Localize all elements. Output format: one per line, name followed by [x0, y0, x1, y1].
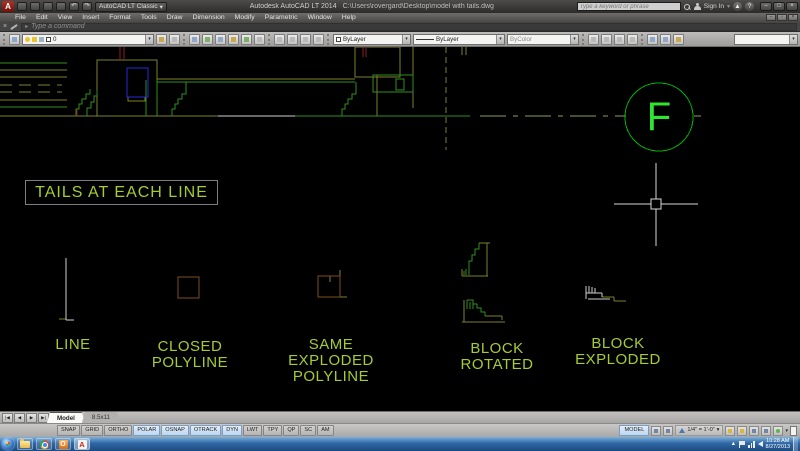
command-chevron-icon: ▸ — [25, 23, 28, 30]
command-input[interactable]: ▸ Type a command — [21, 23, 797, 31]
menu-parametric[interactable]: Parametric — [260, 13, 303, 22]
chevron-down-icon: ▾ — [496, 35, 504, 44]
plotstyle-value: ByColor — [510, 36, 532, 43]
measure-icon[interactable] — [647, 34, 658, 45]
tab-model[interactable]: Model — [47, 412, 85, 423]
titlebar: A ↶ ↷ AutoCAD LT Classic ▾ Autodesk Auto… — [0, 0, 800, 13]
menu-file[interactable]: File — [10, 13, 31, 22]
toggle-ortho[interactable]: ORTHO — [104, 425, 132, 436]
menu-modify[interactable]: Modify — [230, 13, 260, 22]
layer-isolate-icon[interactable] — [228, 34, 239, 45]
toolbar-grip[interactable] — [641, 34, 644, 45]
chevron-down-icon: ▾ — [717, 427, 720, 434]
offset-icon[interactable] — [300, 34, 311, 45]
chevron-down-icon: ▾ — [160, 3, 163, 11]
label-closed-polyline: CLOSED POLYLINE — [128, 339, 252, 371]
minimize-button[interactable]: – — [760, 2, 772, 11]
status-right: MODEL 1/4" = 1'-0" ▾ ▾ — [619, 425, 800, 436]
tab-nav-prev[interactable]: ◀ — [14, 413, 25, 423]
open-icon[interactable] — [30, 2, 40, 11]
quick-select-combo[interactable]: ▾ — [734, 34, 798, 45]
command-line: × ▸ Type a command — [0, 22, 800, 32]
taskbar-autocad[interactable]: A — [74, 438, 90, 450]
action-center-icon[interactable] — [739, 441, 745, 448]
command-prompt: Type a command — [31, 23, 85, 30]
rotate-icon[interactable] — [601, 34, 612, 45]
folder-icon — [20, 441, 30, 448]
layer-walk-icon[interactable] — [241, 34, 252, 45]
scale-icon[interactable] — [614, 34, 625, 45]
linetype-value: ByLayer — [436, 36, 459, 43]
color-swatch — [336, 37, 341, 42]
viewport-icon[interactable] — [663, 426, 673, 436]
menu-window[interactable]: Window — [303, 13, 337, 22]
plotstyle-combo[interactable]: ByColor ▾ — [507, 34, 579, 45]
toggle-otrack[interactable]: OTRACK — [190, 425, 221, 436]
chevron-down-icon: ▾ — [402, 35, 410, 44]
document-path: C:\Users\rovergard\Desktop\model with ta… — [343, 3, 494, 10]
toolbar-grip[interactable] — [183, 34, 186, 45]
toolbar-lock-icon[interactable] — [761, 426, 771, 436]
menu-dimension[interactable]: Dimension — [188, 13, 230, 22]
maximize-button[interactable]: □ — [773, 2, 785, 11]
model-space-button[interactable]: MODEL — [619, 425, 649, 436]
toggle-osnap[interactable]: OSNAP — [161, 425, 189, 436]
taskbar-chrome[interactable] — [36, 438, 52, 450]
layer-sun-icon — [32, 37, 37, 42]
redo-icon[interactable]: ↷ — [82, 2, 92, 11]
layout-tabs: |◀ ◀ ▶ ▶| Model 8.5x11 — [0, 411, 800, 423]
toolbar-grip[interactable] — [582, 34, 585, 45]
tab-nav-last[interactable]: ▶| — [38, 413, 49, 423]
annotation-scale-value: 1/4" = 1'-0" — [687, 427, 714, 434]
cad-drawing — [0, 47, 800, 411]
menu-format[interactable]: Format — [104, 13, 136, 22]
color-combo[interactable]: ByLayer ▾ — [333, 34, 411, 45]
toolbar-row: 0 ▾ ByLayer ▾ ByLayer ▾ ByColor ▾ — [0, 32, 800, 47]
tab-nav-next[interactable]: ▶ — [26, 413, 37, 423]
toggle-polar[interactable]: POLAR — [133, 425, 160, 436]
volume-icon[interactable] — [758, 441, 763, 447]
toolbar-grip[interactable] — [268, 34, 271, 45]
toggle-qp[interactable]: QP — [283, 425, 299, 436]
layer-previous-icon[interactable] — [169, 34, 180, 45]
menu-help[interactable]: Help — [337, 13, 361, 22]
layer-freeze-icon[interactable] — [202, 34, 213, 45]
help-icon[interactable]: ? — [745, 2, 754, 11]
mirror-icon[interactable] — [287, 34, 298, 45]
toggle-tpy[interactable]: TPY — [263, 425, 282, 436]
menu-tools[interactable]: Tools — [136, 13, 162, 22]
match-properties-icon[interactable] — [189, 34, 200, 45]
layer-value: 0 — [53, 36, 56, 43]
help-search — [577, 2, 691, 11]
window-title: Autodesk AutoCAD LT 2014C:\Users\roverga… — [170, 3, 574, 10]
linetype-preview — [416, 39, 434, 40]
layout-icon[interactable] — [651, 426, 661, 436]
chevron-down-icon: ▾ — [789, 35, 797, 44]
array-icon[interactable] — [313, 34, 324, 45]
doc-window-controls: – ▫ × — [766, 14, 800, 21]
toggle-dyn[interactable]: DYN — [222, 425, 242, 436]
layer-off-icon[interactable] — [215, 34, 226, 45]
annotation-scale-button[interactable]: 1/4" = 1'-0" ▾ — [675, 425, 723, 436]
copy-icon[interactable] — [274, 34, 285, 45]
network-icon[interactable] — [748, 441, 755, 448]
clean-screen-button[interactable] — [790, 426, 797, 436]
tails-note: TAILS AT EACH LINE — [25, 180, 218, 205]
menu-edit[interactable]: Edit — [31, 13, 53, 22]
layer-properties-icon[interactable] — [9, 34, 20, 45]
tray-expand-icon[interactable]: ▲ — [731, 441, 736, 447]
label-same-exploded-polyline: SAME EXPLODED POLYLINE — [269, 337, 393, 385]
clock-date: 8/27/2013 — [766, 444, 790, 450]
search-icon[interactable] — [683, 3, 691, 11]
chevron-down-icon: ▾ — [145, 35, 153, 44]
toggle-am[interactable]: AM — [317, 425, 333, 436]
app-title: Autodesk AutoCAD LT 2014 — [250, 3, 337, 10]
sign-in-button[interactable]: Sign In — [704, 3, 724, 10]
plot-icon[interactable] — [56, 2, 66, 11]
status-bar: SNAP GRID ORTHO POLAR OSNAP OTRACK DYN L… — [0, 423, 800, 437]
doc-close-button[interactable]: × — [788, 14, 798, 21]
show-desktop-button[interactable] — [793, 437, 798, 451]
window-controls: – □ × — [760, 2, 798, 11]
toggle-snap[interactable]: SNAP — [57, 425, 80, 436]
tray-status-icon[interactable] — [773, 426, 783, 436]
menu-draw[interactable]: Draw — [162, 13, 188, 22]
workspace-switch-icon[interactable] — [749, 426, 759, 436]
label-block-rotated: BLOCK ROTATED — [435, 341, 559, 373]
properties-icon[interactable] — [660, 34, 671, 45]
user-icon — [694, 3, 701, 11]
status-menu-arrow-icon[interactable]: ▾ — [785, 428, 788, 434]
label-line: LINE — [40, 337, 106, 353]
layer-lock-icon — [39, 37, 44, 42]
toolbar-grip[interactable] — [327, 34, 330, 45]
workspace-label: AutoCAD LT Classic — [99, 3, 158, 10]
status-toggles: SNAP GRID ORTHO POLAR OSNAP OTRACK DYN L… — [57, 425, 334, 436]
layer-color-swatch — [46, 37, 51, 42]
tab-nav-first[interactable]: |◀ — [2, 413, 13, 423]
menu-insert[interactable]: Insert — [77, 13, 104, 22]
menu-view[interactable]: View — [53, 13, 78, 22]
autocad-icon: A — [78, 440, 87, 449]
windows-taskbar: O A ▲ 10:28 AM 8/27/2013 — [0, 437, 800, 451]
toggle-grid[interactable]: GRID — [81, 425, 103, 436]
toggle-lwt[interactable]: LWT — [243, 425, 262, 436]
linetype-combo[interactable]: ByLayer ▾ — [413, 34, 505, 45]
autocad-window: A ↶ ↷ AutoCAD LT Classic ▾ Autodesk Auto… — [0, 0, 800, 451]
save-icon[interactable] — [43, 2, 53, 11]
wrench-icon[interactable] — [10, 23, 18, 29]
chevron-down-icon[interactable]: ▾ — [727, 3, 730, 10]
annotation-visibility-icon[interactable] — [725, 426, 735, 436]
doc-restore-button[interactable]: ▫ — [777, 14, 787, 21]
polyline-squares — [178, 276, 340, 298]
drawing-canvas[interactable]: TAILS AT EACH LINE F LINE CLOSED POLYLIN… — [0, 47, 800, 411]
taskbar-explorer[interactable] — [17, 438, 33, 450]
toolbar-grip[interactable] — [3, 34, 6, 45]
outlook-icon: O — [59, 440, 68, 449]
layer-on-icon — [25, 37, 30, 42]
workspace-dropdown[interactable]: AutoCAD LT Classic ▾ — [95, 2, 167, 12]
autocad-logo-icon[interactable]: A — [2, 1, 14, 12]
layer-lock-toggle-icon[interactable] — [254, 34, 265, 45]
chrome-icon — [40, 440, 49, 449]
color-value: ByLayer — [343, 36, 366, 43]
close-icon[interactable]: × — [3, 22, 7, 32]
layer-combo[interactable]: 0 ▾ — [22, 34, 154, 45]
search-input[interactable] — [577, 2, 681, 11]
close-button[interactable]: × — [786, 2, 798, 11]
doc-minimize-button[interactable]: – — [766, 14, 776, 21]
label-block-exploded: BLOCK EXPLODED — [556, 336, 680, 368]
undo-icon[interactable]: ↶ — [69, 2, 79, 11]
tab-layout-8-5x11[interactable]: 8.5x11 — [82, 412, 120, 423]
autoscale-icon[interactable] — [737, 426, 747, 436]
start-button[interactable] — [2, 438, 14, 450]
crosshair-cursor — [614, 163, 698, 246]
group-icon[interactable] — [673, 34, 684, 45]
new-file-icon[interactable] — [17, 2, 27, 11]
taskbar-outlook[interactable]: O — [55, 438, 71, 450]
annotation-triangle-icon — [679, 428, 685, 433]
chevron-down-icon: ▾ — [570, 35, 578, 44]
toggle-sc[interactable]: SC — [300, 425, 316, 436]
layer-states-icon[interactable] — [156, 34, 167, 45]
taskbar-clock[interactable]: 10:28 AM 8/27/2013 — [766, 438, 790, 450]
circle-letter: F — [644, 91, 674, 143]
system-tray: ▲ 10:28 AM 8/27/2013 — [731, 437, 798, 451]
exchange-apps-icon[interactable]: ▲ — [733, 2, 742, 11]
menubar: File Edit View Insert Format Tools Draw … — [0, 13, 800, 22]
trim-icon[interactable] — [627, 34, 638, 45]
move-icon[interactable] — [588, 34, 599, 45]
